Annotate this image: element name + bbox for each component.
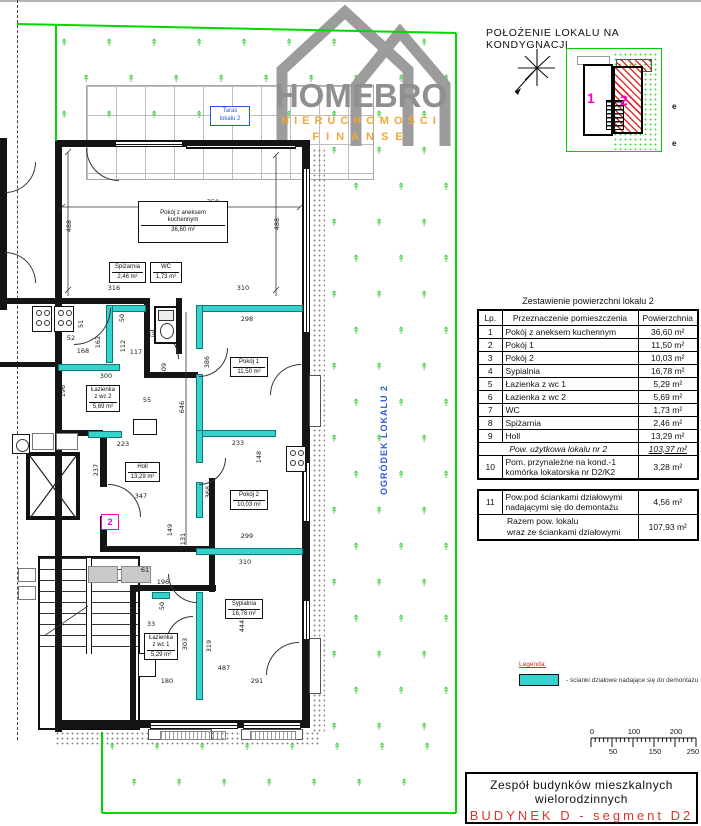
toilet-cistern — [158, 310, 174, 321]
table-cell: Pokój z aneksem kuchennym — [502, 325, 638, 338]
grass-symbol-icon: ↟ — [330, 434, 338, 445]
burner-icon — [36, 320, 42, 326]
room-name: Pokój 1 — [231, 359, 267, 366]
table-cell: Łazienka z wc 2 — [502, 390, 638, 403]
table-row: 8Spiżarnia2,46 m² — [478, 416, 698, 429]
room-name: z wc 2 — [87, 394, 119, 401]
grass-symbol-icon: ↟ — [330, 578, 338, 589]
dimension-label: 33 — [140, 331, 162, 339]
table-cell: Pom. przynależne na kond.-1komórka lokat… — [502, 455, 638, 479]
grass-symbol-icon: ↟ — [330, 650, 338, 661]
dimension-label: 316 — [103, 284, 125, 292]
room-name: WC — [151, 264, 181, 271]
table-row: 1Pokój z aneksem kuchennym36,60 m² — [478, 325, 698, 338]
grass-symbol-icon: ↟ — [130, 778, 138, 789]
room-label: Łazienkaz wc 15,29 m² — [144, 633, 178, 660]
room-area: 13,29 m² — [128, 472, 157, 481]
grass-symbol-icon: ↟ — [420, 362, 428, 373]
table-cell: 8 — [478, 416, 502, 429]
grass-symbol-icon: ↟ — [375, 650, 383, 661]
table-cell: Przeznaczenie pomieszczenia — [502, 310, 638, 325]
burner-icon — [44, 320, 50, 326]
grass-symbol-icon: ↟ — [420, 218, 428, 229]
room-label: Pokój z aneksemkuchennym36,60 m² — [138, 201, 228, 243]
dimension-label: 196 — [59, 380, 67, 402]
grass-symbol-icon: ↟ — [400, 778, 408, 789]
grass-symbol-icon: ↟ — [105, 38, 113, 49]
burner-icon — [66, 320, 72, 326]
table-cell: 4,56 m² — [638, 490, 698, 514]
grass-symbol-icon: ↟ — [82, 74, 90, 85]
scale-label: 200 — [670, 727, 683, 736]
title-block: Zespół budynków mieszkalnych wielorodzin… — [465, 772, 698, 824]
room-name: Holl — [126, 464, 159, 471]
cabinet — [88, 566, 118, 583]
dimension-label: 148 — [255, 446, 263, 468]
elevator-shaft — [26, 452, 80, 520]
burner-icon — [298, 450, 304, 456]
room-area: 11,50 m² — [233, 367, 265, 376]
cabinet — [56, 433, 78, 450]
room-name: Pokój 2 — [231, 492, 267, 499]
table-row: 10Pom. przynależne na kond.-1komórka lok… — [478, 455, 698, 479]
washer-icon — [12, 434, 30, 454]
table-row: 6Łazienka z wc 25,69 m² — [478, 390, 698, 403]
grass-symbol-icon: ↟ — [127, 74, 135, 85]
room-label: Holl13,29 m² — [125, 462, 160, 482]
dimension-label: 299 — [236, 532, 258, 540]
door-swing-arc — [266, 642, 299, 675]
grass-symbol-icon: ↟ — [397, 686, 405, 697]
terrace-label-line2: lokalu 2 — [211, 115, 249, 123]
demountable-partition-wall — [196, 305, 203, 349]
window-sill — [309, 375, 321, 427]
wall-segment — [144, 372, 198, 378]
stove-icon — [286, 446, 306, 472]
room-name: kuchennym — [139, 217, 227, 224]
demountable-partition-wall — [196, 592, 203, 700]
table-cell: Razem pow. lokaluwraz ze ściankami dział… — [478, 514, 638, 540]
grass-symbol-icon: ↟ — [175, 778, 183, 789]
grass-symbol-icon: ↟ — [355, 778, 363, 789]
dimension-label: 487 — [213, 664, 235, 672]
dimension-label: 237 — [92, 459, 100, 481]
grass-symbol-icon: ↟ — [397, 398, 405, 409]
grass-symbol-icon: ↟ — [330, 218, 338, 229]
room-name: Łazienka — [145, 635, 177, 642]
table-cell: Pokój 1 — [502, 338, 638, 351]
room-name: z wc 1 — [145, 642, 177, 649]
burner-icon — [58, 320, 64, 326]
grass-symbol-icon: ↟ — [220, 778, 228, 789]
grass-symbol-icon: ↟ — [442, 686, 450, 697]
dimension-label: 162 — [94, 331, 102, 353]
scale-bar-ruler — [590, 737, 701, 751]
room-area: 10,03 m² — [233, 500, 265, 509]
grass-symbol-icon: ↟ — [172, 74, 180, 85]
grass-symbol-icon: ↟ — [265, 778, 273, 789]
table-cell: Pow. użytkowa lokalu nr 2 — [478, 442, 638, 455]
grass-symbol-icon: ↟ — [378, 742, 386, 753]
wall-segment — [100, 437, 107, 487]
door-swing-arc — [108, 484, 141, 517]
legend-title: Legenda: — [519, 661, 546, 668]
stove-icon — [54, 306, 74, 332]
dimension-label: 488 — [65, 215, 73, 237]
sink-icon — [133, 419, 157, 435]
radiator-icon — [250, 731, 296, 740]
building-title: BUDYNEK D - segment D2 — [467, 808, 696, 823]
table-row: 11Pow.pod ściankami działowyminadającymi… — [478, 490, 698, 514]
burner-icon — [58, 310, 64, 316]
stair-landing-box — [18, 586, 36, 600]
wall-segment — [130, 585, 136, 725]
table-cell: Pokój 2 — [502, 351, 638, 364]
table-cell: 3,28 m² — [638, 455, 698, 479]
grass-symbol-icon: ↟ — [352, 686, 360, 697]
table-cell: Łazienka z wc 1 — [502, 377, 638, 390]
demountable-partition-wall — [196, 305, 303, 312]
table-cell: Pow.pod ściankami działowyminadającymi s… — [502, 490, 638, 514]
grass-symbol-icon: ↟ — [420, 650, 428, 661]
area-table-extra: 11Pow.pod ściankami działowyminadającymi… — [477, 489, 699, 541]
grass-symbol-icon: ↟ — [375, 506, 383, 517]
radiator-icon — [160, 731, 226, 740]
dimension-label: 319 — [205, 635, 213, 657]
terrace-label-line1: Taras — [211, 107, 249, 115]
dimension-label: 50 — [158, 595, 166, 617]
table-row: Razem pow. lokaluwraz ze ściankami dział… — [478, 514, 698, 540]
area-table: Lp.Przeznaczenie pomieszczeniaPowierzchn… — [477, 309, 699, 480]
table-cell: 1,73 m² — [638, 403, 698, 416]
table-cell: Holl — [502, 429, 638, 442]
room-name: Spiżarnia — [110, 264, 145, 271]
table-cell: 16,78 m² — [638, 364, 698, 377]
demountable-partition-wall — [196, 374, 203, 438]
table-cell: 2,46 m² — [638, 416, 698, 429]
table-cell: 10,03 m² — [638, 351, 698, 364]
grass-symbol-icon: ↟ — [442, 182, 450, 193]
table-cell: 5,29 m² — [638, 377, 698, 390]
table-cell: Powierzchnia — [638, 310, 698, 325]
room-label: Łazienkaz wc 25,69 m² — [86, 385, 120, 412]
demountable-partition-wall — [196, 482, 203, 518]
scale-label: 0 — [590, 727, 594, 736]
dimension-label: 298 — [236, 315, 258, 323]
grass-symbol-icon: ↟ — [442, 326, 450, 337]
dimension-label: 149 — [166, 519, 174, 541]
table-row: 7WC1,73 m² — [478, 403, 698, 416]
table-cell: 5 — [478, 377, 502, 390]
dimension-label: 368 — [204, 481, 212, 503]
table-cell: 103,37 m² — [638, 442, 698, 455]
table-row: 3Pokój 210,03 m² — [478, 351, 698, 364]
room-name: Sypialnia — [226, 601, 262, 608]
dimension-label: 310 — [232, 284, 254, 292]
logo-name: HOMEBRO — [266, 79, 456, 112]
table-row: 4Sypialnia16,78 m² — [478, 364, 698, 377]
table-row: Pow. użytkowa lokalu nr 2103,37 m² — [478, 442, 698, 455]
table-cell: Sypialnia — [502, 364, 638, 377]
door-swing-arc — [5, 252, 36, 283]
grass-symbol-icon: ↟ — [60, 38, 68, 49]
burner-icon — [298, 460, 304, 466]
grass-symbol-icon: ↟ — [442, 614, 450, 625]
table-cell: 11,50 m² — [638, 338, 698, 351]
room-area: 2,46 m² — [112, 272, 143, 281]
cabinet — [32, 433, 54, 450]
scale-label: 50 — [609, 747, 617, 756]
logo-subtitle-nieruchomosci: NIERUCHOMOŚCI — [266, 115, 456, 127]
dimension-label: 300 — [95, 372, 117, 380]
grass-symbol-icon: ↟ — [420, 290, 428, 301]
dimension-label: 131 — [179, 528, 187, 550]
grass-symbol-icon: ↟ — [420, 578, 428, 589]
key-plan-unit2-number: 2 — [620, 92, 628, 108]
room-label: Sypialnia16,78 m² — [225, 599, 263, 619]
room-name: Łazienka — [87, 387, 119, 394]
table-row: Lp.Przeznaczenie pomieszczeniaPowierzchn… — [478, 310, 698, 325]
table-cell: 13,29 m² — [638, 429, 698, 442]
grass-symbol-icon: ↟ — [375, 218, 383, 229]
grass-symbol-icon: ↟ — [397, 254, 405, 265]
wall-segment — [0, 298, 147, 304]
wall-segment — [0, 362, 58, 367]
garden-label: OGRÓDEK LOKALU 2 — [379, 380, 393, 500]
room-label: Pokój 111,50 m² — [230, 357, 268, 377]
floor-plan-sheet: ↟↟↟↟↟↟↟↟↟↟↟↟↟↟↟↟↟↟↟↟↟↟↟↟↟↟↟↟↟↟↟↟↟↟↟↟↟↟↟↟… — [0, 0, 701, 826]
key-plan-unit1-number: 1 — [587, 90, 595, 106]
table-cell: 107,93 m² — [638, 514, 698, 540]
table-cell: 10 — [478, 455, 502, 479]
grass-symbol-icon: ↟ — [420, 722, 428, 733]
grass-symbol-icon: ↟ — [423, 742, 431, 753]
room-label: WC1,73 m² — [150, 262, 182, 283]
table-cell: 11 — [478, 490, 502, 514]
project-title-line1: Zespół budynków mieszkalnych — [467, 778, 696, 792]
room-area: 36,60 m² — [141, 225, 225, 234]
table-cell: Lp. — [478, 310, 502, 325]
burner-icon — [66, 310, 72, 316]
room-name: Pokój z aneksem — [139, 210, 227, 217]
table-cell: 4 — [478, 364, 502, 377]
room-area: 5,69 m² — [89, 402, 117, 411]
table-cell: 1 — [478, 325, 502, 338]
grass-symbol-icon: ↟ — [397, 182, 405, 193]
grass-symbol-icon: ↟ — [397, 470, 405, 481]
grass-symbol-icon: ↟ — [420, 434, 428, 445]
grass-symbol-icon: ↟ — [330, 722, 338, 733]
demountable-partition-wall — [88, 431, 122, 438]
grass-symbol-icon: ↟ — [375, 578, 383, 589]
burner-icon — [44, 310, 50, 316]
grass-symbol-icon: ↟ — [397, 542, 405, 553]
demountable-partition-wall — [196, 430, 276, 437]
scale-label: 250 cm — [687, 747, 701, 756]
door-swing-arc — [270, 364, 301, 395]
grass-symbol-icon: ↟ — [352, 326, 360, 337]
burner-icon — [290, 460, 296, 466]
window — [150, 722, 238, 729]
dimension-label: 646 — [178, 396, 186, 418]
table-cell: 5,69 m² — [638, 390, 698, 403]
legend-cyan-swatch — [519, 674, 559, 686]
washer-drum — [16, 439, 29, 452]
table-row: 2Pokój 111,50 m² — [478, 338, 698, 351]
grass-symbol-icon: ↟ — [330, 290, 338, 301]
grass-symbol-icon: ↟ — [352, 182, 360, 193]
dimension-label: 117 — [125, 348, 147, 356]
grass-symbol-icon: ↟ — [195, 38, 203, 49]
grass-symbol-icon: ↟ — [352, 470, 360, 481]
grass-symbol-icon: ↟ — [352, 542, 360, 553]
dimension-label: 291 — [246, 677, 268, 685]
dimension-label: 196 — [152, 578, 174, 586]
grass-symbol-icon: ↟ — [150, 38, 158, 49]
key-plan: 1 2 — [560, 45, 680, 157]
grass-symbol-icon: ↟ — [60, 110, 68, 121]
stove-icon — [32, 306, 52, 332]
demountable-partition-wall — [196, 548, 303, 555]
terrace-label: Taras lokalu 2 — [210, 106, 250, 126]
dimension-label: 347 — [130, 492, 152, 500]
elevator-door-gap — [80, 470, 86, 504]
grass-symbol-icon: ↟ — [330, 506, 338, 517]
grass-symbol-icon: ↟ — [352, 398, 360, 409]
table-cell: Spiżarnia — [502, 416, 638, 429]
grass-symbol-icon: ↟ — [333, 742, 341, 753]
dimension-label: 409 — [160, 358, 168, 380]
room-area: 5,29 m² — [147, 650, 175, 659]
window — [303, 168, 310, 333]
table-row: 5Łazienka z wc 15,29 m² — [478, 377, 698, 390]
grass-symbol-icon: ↟ — [330, 362, 338, 373]
dimension-label: 50 — [118, 307, 126, 329]
dimension-label: 223 — [112, 440, 134, 448]
dimension-label: 52 — [60, 334, 82, 342]
table-cell: 2 — [478, 338, 502, 351]
door-swing-arc — [5, 162, 36, 193]
burner-icon — [290, 450, 296, 456]
dimension-label: 55 — [136, 396, 158, 404]
window — [186, 145, 296, 149]
grass-symbol-icon: ↟ — [217, 74, 225, 85]
dimension-label: 168 — [72, 347, 94, 355]
grass-symbol-icon: ↟ — [442, 542, 450, 553]
grass-symbol-icon: ↟ — [352, 254, 360, 265]
grass-symbol-icon: ↟ — [375, 290, 383, 301]
burner-icon — [36, 310, 42, 316]
window — [243, 722, 301, 729]
unit-number-badge: 2 — [101, 514, 119, 530]
table-cell: 6 — [478, 390, 502, 403]
grass-symbol-icon: ↟ — [375, 362, 383, 373]
dimension-label: 488 — [273, 213, 281, 235]
grass-symbol-icon: ↟ — [375, 722, 383, 733]
table-cell: WC — [502, 403, 638, 416]
table-row: 9Holl13,29 m² — [478, 429, 698, 442]
toilet-bowl — [160, 323, 174, 339]
window — [115, 141, 183, 147]
project-title-line2: wielorodzinnych — [467, 792, 696, 806]
table-cell: 36,60 m² — [638, 325, 698, 338]
dimension-label: 303 — [181, 633, 189, 655]
legend-item-text: - ścianki działowe nadające się do demon… — [566, 677, 698, 684]
room-label: Spiżarnia2,46 m² — [109, 262, 146, 283]
dimension-label: 386 — [203, 351, 211, 373]
grass-symbol-icon: ↟ — [442, 398, 450, 409]
site-boundary-dashed-line — [17, 0, 18, 740]
table-cell: 3 — [478, 351, 502, 364]
demountable-partition-wall — [58, 364, 120, 371]
compass-north-icon — [505, 44, 561, 106]
dimension-label: 180 — [156, 677, 178, 685]
grass-symbol-icon: ↟ — [420, 506, 428, 517]
area-table-title: Zestawienie powierzchni lokalu 2 — [478, 296, 698, 306]
dimension-label: 310 — [234, 558, 256, 566]
scale-label: 150 — [649, 747, 662, 756]
room-area: 1,73 m² — [153, 272, 179, 281]
dimension-label: 33 — [140, 620, 162, 628]
grass-symbol-icon: ↟ — [442, 470, 450, 481]
table-cell: 9 — [478, 429, 502, 442]
grass-symbol-icon: ↟ — [397, 326, 405, 337]
grass-symbol-icon: ↟ — [240, 38, 248, 49]
table-cell: 7 — [478, 403, 502, 416]
grass-symbol-icon: ↟ — [397, 614, 405, 625]
dimension-label: 51 — [77, 313, 85, 335]
window — [303, 600, 310, 640]
stair-landing-box — [18, 568, 36, 582]
room-area: 16,78 m² — [228, 609, 260, 618]
window-sill — [309, 638, 321, 694]
grass-symbol-icon: ↟ — [310, 778, 318, 789]
grass-symbol-icon: ↟ — [442, 254, 450, 265]
room-label: Pokój 210,03 m² — [230, 490, 268, 510]
grass-symbol-icon: ↟ — [352, 614, 360, 625]
scale-label: 100 — [628, 727, 641, 736]
dimension-label: 61 — [134, 566, 156, 574]
dimension-label: 233 — [227, 439, 249, 447]
